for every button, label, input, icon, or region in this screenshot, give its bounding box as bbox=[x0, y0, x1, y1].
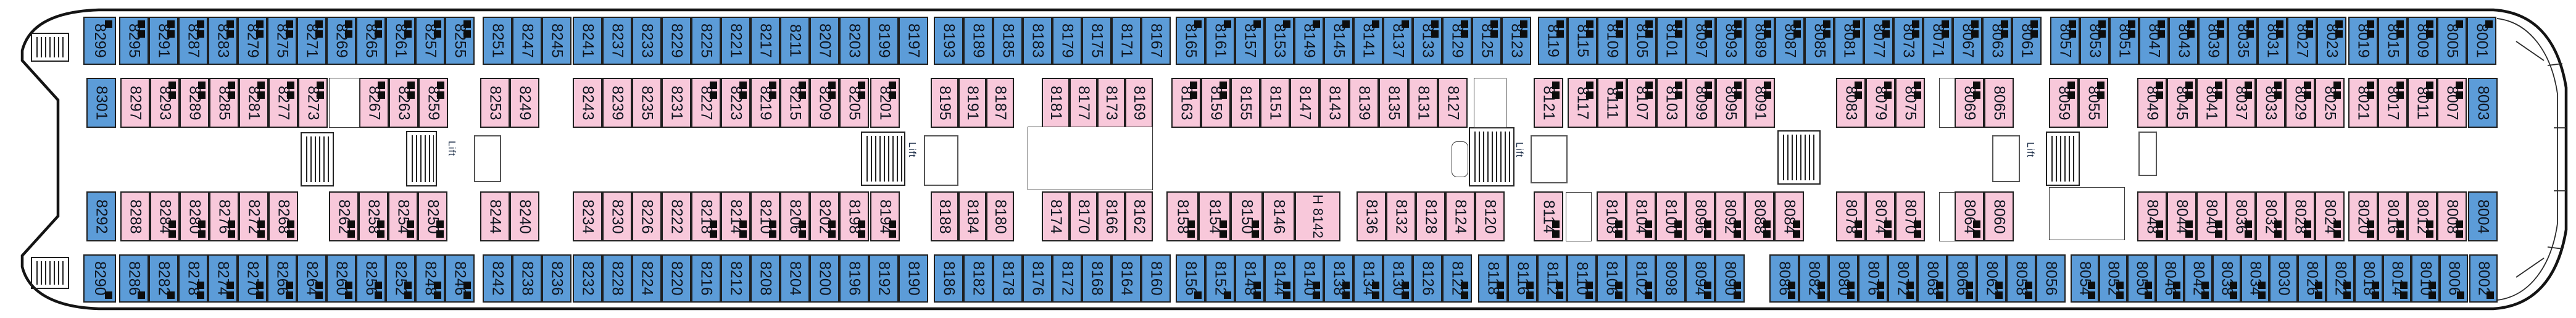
cabin-number: 8175 bbox=[1089, 23, 1105, 58]
cabin-8272: 8272 bbox=[239, 191, 268, 241]
cabin-8185: 8185 bbox=[993, 17, 1023, 65]
berth-mark-icon bbox=[2245, 230, 2252, 238]
cabin-number: 8009 bbox=[2415, 23, 2430, 58]
berth-mark-icon bbox=[889, 220, 896, 228]
cabin-8242: 8242 bbox=[483, 254, 512, 303]
cabin-8245: 8245 bbox=[542, 17, 571, 65]
berth-mark-icon bbox=[739, 230, 747, 238]
cabin-number: 8066 bbox=[1955, 261, 1970, 296]
cabin-number: 8052 bbox=[2106, 261, 2121, 296]
cabin-8293: 8293 bbox=[150, 78, 180, 128]
cabin-8107: 8107 bbox=[1627, 78, 1656, 128]
cabin-8067: 8067 bbox=[1953, 17, 1982, 65]
berth-mark-icon bbox=[1645, 91, 1653, 99]
berth-mark-icon bbox=[1224, 291, 1231, 299]
cabin-number: 8022 bbox=[2333, 261, 2348, 296]
cabin-8125: 8125 bbox=[1472, 17, 1502, 65]
cabin-8247: 8247 bbox=[512, 17, 542, 65]
berth-mark-icon bbox=[769, 82, 776, 89]
cabin-number: 8146 bbox=[1271, 199, 1287, 234]
cabin-number: 8050 bbox=[2134, 261, 2150, 296]
cabin-8085: 8085 bbox=[1805, 17, 1834, 65]
cabin-number: 8125 bbox=[1479, 23, 1495, 58]
cabin-number: 8150 bbox=[1239, 199, 1255, 234]
cabin-8071: 8071 bbox=[1923, 17, 1953, 65]
berth-mark-icon bbox=[858, 91, 865, 99]
cabin-8255: 8255 bbox=[445, 17, 475, 65]
cabin-number: 8244 bbox=[488, 199, 503, 234]
cabin-number: 8065 bbox=[1992, 86, 2007, 120]
berth-mark-icon bbox=[226, 30, 234, 38]
berth-mark-icon bbox=[1552, 82, 1560, 89]
cabin-number: 8097 bbox=[1693, 23, 1709, 58]
berth-mark-icon bbox=[2367, 30, 2374, 38]
cabin-8015: 8015 bbox=[2378, 17, 2408, 65]
berth-mark-icon bbox=[2367, 230, 2374, 238]
cabin-8188: 8188 bbox=[931, 191, 958, 241]
berth-mark-icon bbox=[1942, 30, 1949, 38]
berth-mark-icon bbox=[1490, 20, 1498, 28]
cabin-number: 8262 bbox=[336, 199, 352, 234]
cabin-8044: 8044 bbox=[2167, 191, 2196, 241]
berth-mark-icon bbox=[1823, 20, 1830, 28]
berth-mark-icon bbox=[1402, 282, 1409, 289]
cabin-number: 8180 bbox=[992, 199, 1008, 234]
berth-mark-icon bbox=[2215, 230, 2222, 238]
cabin-8052: 8052 bbox=[2099, 254, 2127, 303]
cabin-8027: 8027 bbox=[2287, 17, 2317, 65]
cabin-8030: 8030 bbox=[2269, 254, 2298, 303]
cabin-number: 8078 bbox=[1843, 199, 1859, 234]
cabin-8121: 8121 bbox=[1534, 78, 1563, 128]
cabin-number: 8271 bbox=[304, 23, 320, 58]
cabin-8195: 8195 bbox=[931, 78, 958, 128]
cabin-number: 8155 bbox=[1238, 86, 1253, 120]
cabin-number: 8088 bbox=[1752, 199, 1768, 234]
berth-mark-icon bbox=[2116, 291, 2124, 299]
cabin-number: 8193 bbox=[941, 23, 957, 58]
cabin-number: 8253 bbox=[488, 86, 503, 120]
berth-mark-icon bbox=[2367, 82, 2374, 89]
berth-mark-icon bbox=[1616, 20, 1623, 28]
berth-mark-icon bbox=[404, 30, 412, 38]
berth-mark-icon bbox=[287, 91, 294, 99]
cabin-8019: 8019 bbox=[2348, 17, 2378, 65]
cabin-number: 8031 bbox=[2265, 23, 2280, 58]
berth-mark-icon bbox=[287, 82, 294, 89]
cabin-number: 8241 bbox=[580, 23, 596, 58]
berth-mark-icon bbox=[1431, 20, 1439, 28]
cabin-8115: 8115 bbox=[1568, 17, 1597, 65]
berth-mark-icon bbox=[1187, 220, 1195, 228]
berth-mark-icon bbox=[1520, 20, 1527, 28]
cabin-8149: 8149 bbox=[1294, 17, 1324, 65]
berth-mark-icon bbox=[1675, 20, 1682, 28]
cabin-8144: 8144 bbox=[1265, 254, 1294, 303]
cabin-8069: 8069 bbox=[1955, 78, 1984, 128]
berth-mark-icon bbox=[2367, 91, 2374, 99]
berth-mark-icon bbox=[2372, 282, 2379, 289]
berth-mark-icon bbox=[2245, 82, 2252, 89]
berth-mark-icon bbox=[799, 230, 806, 238]
berth-mark-icon bbox=[1734, 30, 1742, 38]
berth-mark-icon bbox=[1645, 82, 1653, 89]
berth-mark-icon bbox=[2156, 82, 2163, 89]
berth-mark-icon bbox=[436, 230, 444, 238]
berth-mark-icon bbox=[769, 220, 776, 228]
cabin-number: 8043 bbox=[2176, 23, 2192, 58]
cabin-number: 8012 bbox=[2415, 199, 2430, 234]
cabin-number: 8191 bbox=[965, 86, 980, 120]
berth-mark-icon bbox=[1734, 20, 1742, 28]
cabin-8246: 8246 bbox=[445, 254, 475, 303]
berth-mark-icon bbox=[1313, 20, 1320, 28]
cabin-8112: 8112 bbox=[1537, 254, 1567, 303]
cabin-8281: 8281 bbox=[239, 78, 268, 128]
cabin-number: 8194 bbox=[878, 199, 893, 234]
cabin-8257: 8257 bbox=[415, 17, 445, 65]
berth-mark-icon bbox=[2456, 91, 2463, 99]
cabin-8159: 8159 bbox=[1201, 78, 1231, 128]
berth-mark-icon bbox=[2187, 20, 2195, 28]
cabin-number: 8214 bbox=[728, 199, 744, 234]
cabin-8252: 8252 bbox=[386, 254, 415, 303]
berth-mark-icon bbox=[2396, 230, 2404, 238]
cabin-8053: 8053 bbox=[2080, 17, 2109, 65]
cabin-number: 8124 bbox=[1453, 199, 1468, 234]
berth-mark-icon bbox=[1645, 282, 1652, 289]
berth-mark-icon bbox=[2185, 230, 2193, 238]
cabin-8066: 8066 bbox=[1947, 254, 1977, 303]
cabin-number: 8082 bbox=[1806, 261, 1822, 296]
stairs-icon-1 bbox=[31, 33, 69, 62]
cabin-number: 8084 bbox=[1782, 199, 1797, 234]
cabin-8102: 8102 bbox=[1626, 254, 1656, 303]
berth-mark-icon bbox=[1615, 291, 1622, 299]
cabin-8028: 8028 bbox=[2285, 191, 2315, 241]
berth-mark-icon bbox=[407, 91, 415, 99]
cabin-8301: 8301 bbox=[86, 78, 116, 128]
berth-mark-icon bbox=[739, 220, 747, 228]
cabin-8124: 8124 bbox=[1445, 191, 1475, 241]
cabin-number: 8260 bbox=[334, 261, 349, 296]
cabin-8084: 8084 bbox=[1774, 191, 1804, 241]
berth-mark-icon bbox=[436, 220, 444, 228]
cabin-number: 8225 bbox=[699, 23, 714, 58]
cabin-number: 8181 bbox=[1048, 86, 1063, 120]
cabin-8163: 8163 bbox=[1171, 78, 1201, 128]
lift-shaft-3 bbox=[1531, 135, 1568, 183]
cabin-8166: 8166 bbox=[1097, 191, 1125, 241]
cabin-8004: 8004 bbox=[2468, 191, 2498, 241]
cabin-8089: 8089 bbox=[1745, 17, 1775, 65]
cabin-8234: 8234 bbox=[573, 191, 602, 241]
cabin-8209: 8209 bbox=[810, 78, 839, 128]
berth-mark-icon bbox=[2304, 91, 2311, 99]
cabin-8254: 8254 bbox=[388, 191, 418, 241]
berth-mark-icon bbox=[2156, 91, 2163, 99]
berth-mark-icon bbox=[2456, 220, 2463, 228]
cabin-number: 8224 bbox=[639, 261, 655, 296]
cabin-8140: 8140 bbox=[1294, 254, 1324, 303]
cabin-8176: 8176 bbox=[1023, 254, 1052, 303]
cabin-8033: 8033 bbox=[2256, 78, 2285, 128]
cabin-number: 8217 bbox=[758, 23, 773, 58]
cabin-8021: 8021 bbox=[2348, 78, 2378, 128]
berth-mark-icon bbox=[228, 230, 235, 238]
berth-mark-icon bbox=[1764, 20, 1771, 28]
cabin-8207: 8207 bbox=[810, 17, 839, 65]
berth-mark-icon bbox=[1818, 291, 1825, 299]
cabin-number: 8133 bbox=[1420, 23, 1435, 58]
berth-mark-icon bbox=[1734, 291, 1741, 299]
cabin-number: 8251 bbox=[490, 23, 505, 58]
cabin-8012: 8012 bbox=[2408, 191, 2437, 241]
cabin-8079: 8079 bbox=[1866, 78, 1895, 128]
cabin-8080: 8080 bbox=[1829, 254, 1858, 303]
cabin-8235: 8235 bbox=[632, 78, 662, 128]
cabin-8065: 8065 bbox=[1984, 78, 2014, 128]
berth-mark-icon bbox=[2001, 30, 2008, 38]
cabin-8143: 8143 bbox=[1319, 78, 1349, 128]
cabin-8229: 8229 bbox=[662, 17, 691, 65]
cabin-8299: 8299 bbox=[83, 17, 116, 65]
service-room-5 bbox=[1939, 78, 1955, 128]
cabin-number: 8076 bbox=[1866, 261, 1881, 296]
berth-mark-icon bbox=[345, 20, 352, 28]
berth-mark-icon bbox=[1793, 20, 1801, 28]
lift-label-1: Lift bbox=[442, 141, 457, 185]
cabin-number: 8073 bbox=[1901, 23, 1916, 58]
berth-mark-icon bbox=[1586, 91, 1593, 99]
cabin-number: 8070 bbox=[1903, 199, 1918, 234]
berth-mark-icon bbox=[1973, 82, 1980, 89]
berth-mark-icon bbox=[2187, 30, 2195, 38]
cabin-8178: 8178 bbox=[993, 254, 1023, 303]
cabin-number: 8026 bbox=[2304, 261, 2320, 296]
cabin-8040: 8040 bbox=[2196, 191, 2226, 241]
cabin-number: 8274 bbox=[215, 261, 231, 296]
berth-mark-icon bbox=[1906, 291, 1914, 299]
cabin-8087: 8087 bbox=[1775, 17, 1805, 65]
cabin-number: 8058 bbox=[2014, 261, 2029, 296]
cabin-number: 8176 bbox=[1030, 261, 1045, 296]
lift-label-3: Lift bbox=[1510, 142, 1524, 186]
berth-mark-icon bbox=[287, 230, 294, 238]
cabin-number: 8072 bbox=[1895, 261, 1911, 296]
cabin-number: 8208 bbox=[758, 261, 773, 296]
berth-mark-icon bbox=[1372, 291, 1379, 299]
cabin-8063: 8063 bbox=[1982, 17, 2012, 65]
cabin-number: 8275 bbox=[275, 23, 290, 58]
berth-mark-icon bbox=[739, 91, 747, 99]
cabin-number: 8119 bbox=[1545, 24, 1561, 57]
berth-mark-icon bbox=[167, 291, 175, 299]
cabin-number: 8186 bbox=[941, 261, 957, 296]
cabin-8037: 8037 bbox=[2226, 78, 2256, 128]
berth-mark-icon bbox=[2343, 282, 2351, 289]
cabin-number: 8156 bbox=[1183, 261, 1199, 296]
cabin-8268: 8268 bbox=[268, 191, 298, 241]
berth-mark-icon bbox=[2456, 82, 2463, 89]
cabin-8190: 8190 bbox=[899, 254, 928, 303]
cabin-8240: 8240 bbox=[510, 191, 539, 241]
stairs-icon-6 bbox=[1469, 127, 1514, 186]
cabin-8046: 8046 bbox=[2156, 254, 2184, 303]
berth-mark-icon bbox=[2069, 30, 2076, 38]
berth-mark-icon bbox=[286, 20, 293, 28]
cabin-number: 8006 bbox=[2446, 261, 2462, 296]
cabin-number: 8148 bbox=[1242, 261, 1258, 296]
berth-mark-icon bbox=[287, 220, 294, 228]
cabin-8001: 8001 bbox=[2467, 17, 2496, 65]
cabin-8148: 8148 bbox=[1235, 254, 1265, 303]
berth-mark-icon bbox=[1914, 220, 1921, 228]
cabin-8009: 8009 bbox=[2408, 17, 2437, 65]
berth-mark-icon bbox=[315, 291, 323, 299]
cabin-8104: 8104 bbox=[1626, 191, 1656, 241]
berth-mark-icon bbox=[315, 282, 323, 289]
berth-mark-icon bbox=[1884, 230, 1892, 238]
cabin-8060: 8060 bbox=[1984, 191, 2014, 241]
berth-mark-icon bbox=[1313, 282, 1320, 289]
berth-mark-icon bbox=[1704, 220, 1711, 228]
cabin-number: 8032 bbox=[2263, 199, 2279, 234]
cabin-8291: 8291 bbox=[149, 17, 178, 65]
berth-mark-icon bbox=[434, 282, 441, 289]
cabin-8265: 8265 bbox=[356, 17, 386, 65]
berth-mark-icon bbox=[1586, 20, 1593, 28]
cabin-number: 8284 bbox=[157, 199, 173, 234]
berth-mark-icon bbox=[2396, 82, 2404, 89]
berth-mark-icon bbox=[2245, 91, 2252, 99]
berth-mark-icon bbox=[1586, 30, 1593, 38]
cabin-8273: 8273 bbox=[298, 78, 328, 128]
berth-mark-icon bbox=[375, 20, 382, 28]
cabin-8137: 8137 bbox=[1383, 17, 1413, 65]
berth-mark-icon bbox=[1461, 291, 1468, 299]
cabin-number: 8161 bbox=[1213, 23, 1228, 58]
cabin-number: 8144 bbox=[1272, 261, 1287, 296]
cabin-8260: 8260 bbox=[326, 254, 356, 303]
cabin-number: 8060 bbox=[1992, 199, 2007, 234]
berth-mark-icon bbox=[1823, 30, 1830, 38]
cabin-8175: 8175 bbox=[1082, 17, 1111, 65]
cabin-8259: 8259 bbox=[418, 78, 448, 128]
cabin-number: 8187 bbox=[992, 86, 1008, 120]
cabin-8062: 8062 bbox=[1977, 254, 2006, 303]
cabin-8171: 8171 bbox=[1111, 17, 1141, 65]
stairs-icon-2 bbox=[31, 257, 69, 289]
cabin-number: 8062 bbox=[1984, 261, 2000, 296]
cabin-8217: 8217 bbox=[750, 17, 780, 65]
cabin-8116: 8116 bbox=[1508, 254, 1537, 303]
cabin-number: 8234 bbox=[580, 199, 596, 234]
cabin-8248: 8248 bbox=[415, 254, 445, 303]
berth-mark-icon bbox=[1971, 20, 1979, 28]
cabin-8270: 8270 bbox=[238, 254, 267, 303]
cabin-8169: 8169 bbox=[1125, 78, 1153, 128]
berth-mark-icon bbox=[198, 220, 206, 228]
cabin-8261: 8261 bbox=[386, 17, 415, 65]
berth-mark-icon bbox=[1616, 30, 1623, 38]
cabin-number: 8265 bbox=[364, 23, 379, 58]
cabin-8098: 8098 bbox=[1656, 254, 1685, 303]
berth-mark-icon bbox=[1942, 20, 1949, 28]
cabin-number: 8168 bbox=[1089, 261, 1105, 296]
cabin-8231: 8231 bbox=[662, 78, 691, 128]
cabin-8290: 8290 bbox=[83, 254, 116, 303]
berth-mark-icon bbox=[1912, 30, 1919, 38]
cabin-number: 8036 bbox=[2233, 199, 2249, 234]
cabin-8215: 8215 bbox=[780, 78, 810, 128]
berth-mark-icon bbox=[1995, 291, 2003, 299]
berth-mark-icon bbox=[710, 91, 717, 99]
cabin-8058: 8058 bbox=[2006, 254, 2036, 303]
cabin-number: 8064 bbox=[1962, 199, 1977, 234]
berth-mark-icon bbox=[256, 30, 264, 38]
cabin-number: 8098 bbox=[1663, 261, 1679, 296]
berth-mark-icon bbox=[1704, 282, 1711, 289]
cabin-number: 8299 bbox=[92, 23, 107, 58]
cabin-number: 8126 bbox=[1420, 261, 1435, 296]
berth-mark-icon bbox=[347, 220, 355, 228]
cabin-number: 8039 bbox=[2206, 23, 2221, 58]
berth-mark-icon bbox=[1615, 220, 1622, 228]
berth-mark-icon bbox=[828, 230, 836, 238]
berth-mark-icon bbox=[2030, 20, 2038, 28]
berth-mark-icon bbox=[2097, 91, 2104, 99]
berth-mark-icon bbox=[228, 82, 235, 89]
berth-mark-icon bbox=[1764, 91, 1771, 99]
berth-mark-icon bbox=[1461, 30, 1468, 38]
berth-mark-icon bbox=[1763, 220, 1771, 228]
cabin-8276: 8276 bbox=[209, 191, 239, 241]
cabin-number: 8183 bbox=[1030, 23, 1045, 58]
cabin-number: 8280 bbox=[187, 199, 202, 234]
cabin-8129: 8129 bbox=[1442, 17, 1472, 65]
cabin-8250: 8250 bbox=[418, 191, 447, 241]
cabin-number: 8261 bbox=[393, 23, 409, 58]
cabin-8264: 8264 bbox=[297, 254, 326, 303]
berth-mark-icon bbox=[799, 82, 806, 89]
cabin-8093: 8093 bbox=[1716, 17, 1745, 65]
berth-mark-icon bbox=[1402, 20, 1409, 28]
cabin-number: 8018 bbox=[2361, 261, 2377, 296]
cabin-number: 8197 bbox=[906, 23, 921, 58]
cabin-8256: 8256 bbox=[356, 254, 386, 303]
berth-mark-icon bbox=[2426, 82, 2433, 89]
berth-mark-icon bbox=[2215, 220, 2222, 228]
berth-mark-icon bbox=[257, 91, 265, 99]
cabin-number: 8080 bbox=[1836, 261, 1851, 296]
cabin-number: 8101 bbox=[1664, 23, 1679, 58]
cabin-8208: 8208 bbox=[750, 254, 780, 303]
berth-mark-icon bbox=[1461, 20, 1468, 28]
cabin-number: 8096 bbox=[1693, 199, 1708, 234]
berth-mark-icon bbox=[858, 220, 865, 228]
berth-mark-icon bbox=[2025, 291, 2032, 299]
berth-mark-icon bbox=[1190, 82, 1197, 89]
cabin-8034: 8034 bbox=[2241, 254, 2269, 303]
cabin-number: 8054 bbox=[2077, 261, 2093, 296]
berth-mark-icon bbox=[2156, 230, 2163, 238]
cabin-number: 8229 bbox=[669, 23, 684, 58]
berth-mark-icon bbox=[2343, 291, 2351, 299]
berth-mark-icon bbox=[1936, 291, 1943, 299]
berth-mark-icon bbox=[1219, 91, 1227, 99]
cabin-8010: 8010 bbox=[2411, 254, 2440, 303]
